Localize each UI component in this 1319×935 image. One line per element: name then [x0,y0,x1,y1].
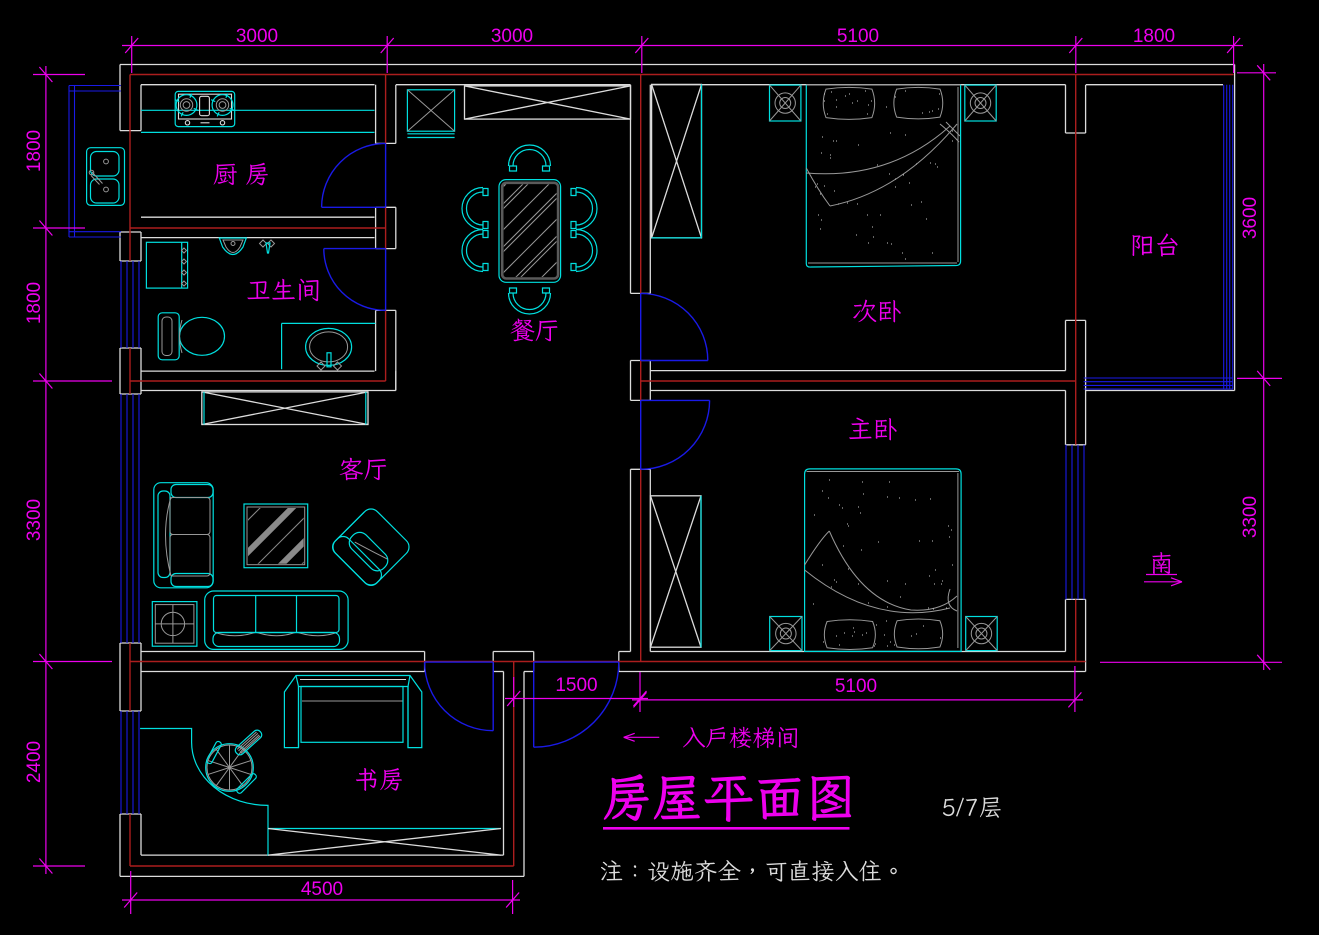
svg-text:3300: 3300 [1240,496,1261,538]
svg-text:1500: 1500 [555,675,597,696]
svg-text:1800: 1800 [1133,26,1175,47]
svg-text:2400: 2400 [24,741,45,783]
svg-text:3000: 3000 [236,26,278,47]
svg-text:1800: 1800 [24,130,45,172]
svg-text:4500: 4500 [301,879,343,900]
svg-text:5100: 5100 [837,26,879,47]
svg-text:1800: 1800 [24,282,45,324]
svg-text:5100: 5100 [835,676,877,697]
svg-text:3300: 3300 [24,499,45,541]
svg-text:3600: 3600 [1240,197,1261,239]
svg-text:3000: 3000 [491,26,533,47]
